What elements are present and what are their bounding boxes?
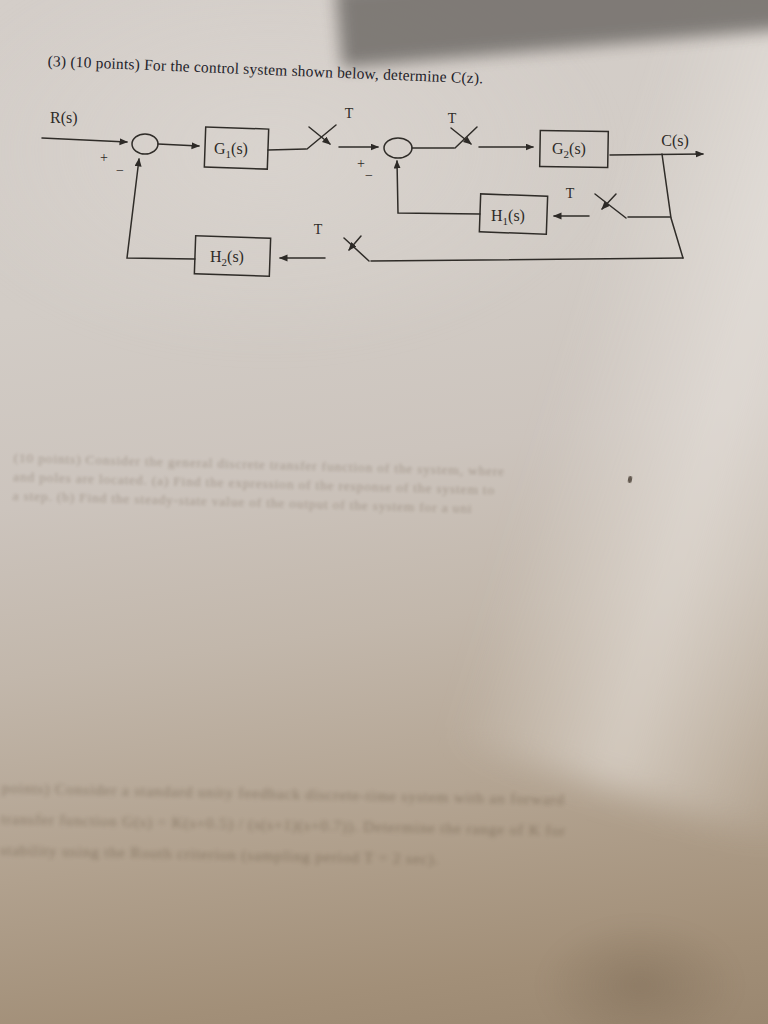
input-signal-line (42, 138, 127, 142)
block-h1-label: H1(s) (491, 207, 525, 227)
h1-to-sum2-line (397, 161, 480, 214)
output-branch-vertical (662, 154, 683, 258)
sum2-minus-sign: − (365, 168, 373, 183)
output-label: C(s) (661, 132, 689, 150)
sum1-to-g1-line (158, 144, 199, 146)
sum1-plus-sign: + (100, 150, 108, 165)
sum2-plus-sign: + (357, 156, 365, 171)
h2-to-sum1-line (127, 159, 195, 259)
photographed-exam-page: (3) (10 points) For the control system s… (0, 0, 768, 1024)
bleed-through-text-bottom: points) Consider a standard unity feedba… (0, 772, 766, 881)
input-label: R(s) (50, 109, 78, 127)
summing-junction-2 (384, 138, 412, 158)
outer-feedback-bottom-line (371, 258, 683, 261)
g1-to-sampler1-line (268, 149, 306, 150)
block-h2-label: H2(s) (210, 248, 244, 268)
block-g1-label: G1(s) (214, 140, 248, 160)
sampler3-period-label: T (566, 186, 575, 201)
sum1-minus-sign: − (116, 163, 124, 178)
sampler4-period-label: T (314, 222, 323, 237)
sampler1-arrow-stroke (309, 127, 330, 144)
block-g2-label: G2(s) (552, 140, 586, 160)
sampler3-switch-arm (595, 194, 626, 218)
sampler2-switch-arm (455, 127, 477, 148)
sampler1-period-label: T (345, 106, 354, 121)
summing-junction-1 (132, 134, 158, 154)
sampler2-period-label: T (448, 111, 457, 126)
output-signal-line (610, 154, 703, 155)
